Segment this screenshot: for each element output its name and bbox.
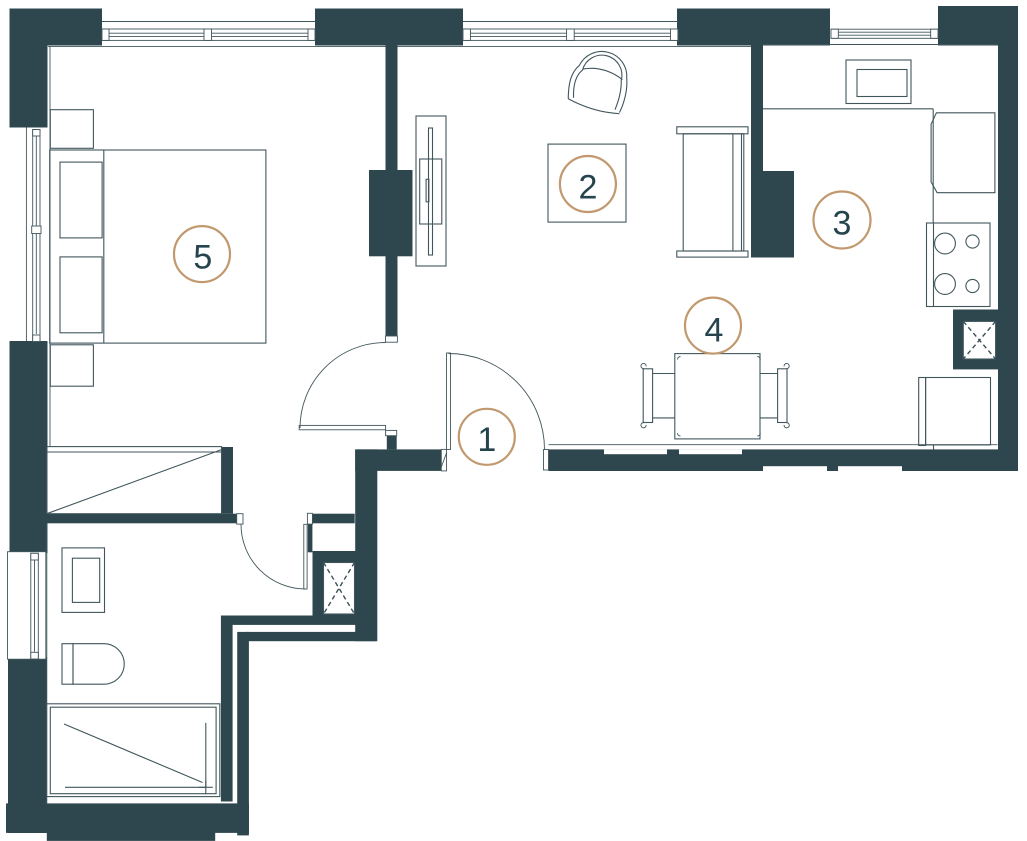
svg-text:2: 2 <box>578 169 597 207</box>
svg-text:3: 3 <box>833 205 852 243</box>
svg-text:4: 4 <box>705 311 724 349</box>
svg-text:5: 5 <box>193 239 212 277</box>
svg-text:1: 1 <box>477 421 496 459</box>
